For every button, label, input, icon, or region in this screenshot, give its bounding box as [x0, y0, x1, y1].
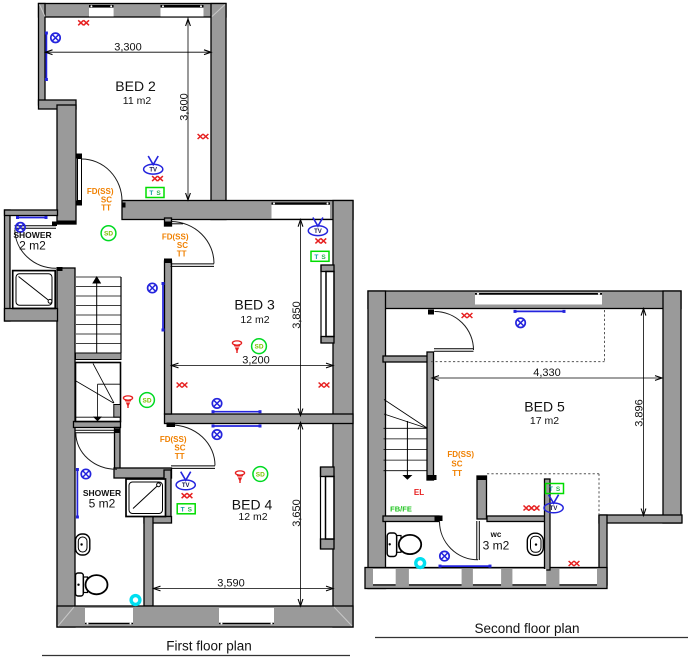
svg-text:Second floor plan: Second floor plan: [474, 621, 579, 636]
svg-text:TT: TT: [177, 250, 187, 259]
svg-text:EL: EL: [414, 488, 424, 497]
svg-text:3,200: 3,200: [242, 355, 270, 367]
svg-text:3,850: 3,850: [291, 301, 303, 329]
svg-text:3 m2: 3 m2: [483, 539, 510, 553]
svg-text:3,896: 3,896: [634, 399, 646, 427]
svg-text:BED 2: BED 2: [115, 78, 156, 94]
svg-text:FB/FE: FB/FE: [390, 505, 412, 514]
svg-text:3,650: 3,650: [291, 499, 303, 527]
svg-text:SC: SC: [451, 460, 462, 469]
svg-text:BED 5: BED 5: [524, 399, 565, 415]
svg-text:First floor plan: First floor plan: [166, 639, 252, 654]
svg-text:TT: TT: [452, 469, 462, 478]
svg-text:11 m2: 11 m2: [123, 95, 152, 107]
svg-text:3,600: 3,600: [179, 93, 191, 121]
svg-text:12 m2: 12 m2: [238, 511, 267, 523]
svg-text:12 m2: 12 m2: [240, 314, 269, 326]
svg-text:17 m2: 17 m2: [530, 415, 559, 427]
svg-text:TT: TT: [175, 452, 185, 461]
svg-text:2 m2: 2 m2: [19, 239, 46, 253]
svg-text:FD(SS): FD(SS): [447, 450, 474, 459]
svg-text:4,330: 4,330: [533, 367, 561, 379]
svg-text:TT: TT: [101, 204, 111, 213]
svg-text:5 m2: 5 m2: [89, 497, 116, 511]
svg-text:BED 3: BED 3: [234, 297, 275, 313]
svg-text:3,300: 3,300: [114, 41, 142, 53]
svg-text:3,590: 3,590: [217, 578, 245, 590]
